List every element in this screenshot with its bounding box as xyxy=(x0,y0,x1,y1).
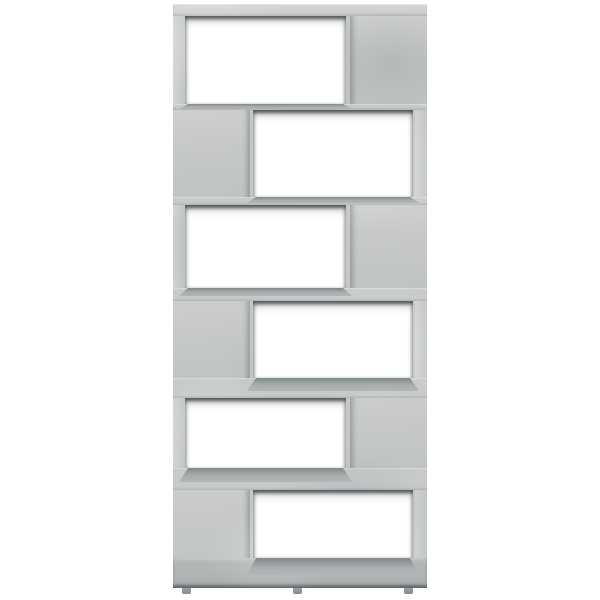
compartment-opening xyxy=(185,205,346,288)
right-side-edge xyxy=(415,301,427,378)
foot xyxy=(404,588,413,594)
product-photo xyxy=(0,0,600,600)
compartment-opening xyxy=(185,16,346,104)
back-panel xyxy=(350,197,427,301)
back-panel xyxy=(173,104,250,205)
compartment-opening xyxy=(185,398,346,468)
shelf-surface xyxy=(179,468,352,482)
left-side-edge xyxy=(173,16,185,104)
shelf-surface xyxy=(179,288,352,296)
left-side-edge xyxy=(173,205,185,288)
compartment-opening xyxy=(253,110,413,197)
shelf-surface xyxy=(179,104,352,109)
left-side-edge xyxy=(173,398,185,468)
cabinet-frame xyxy=(173,4,427,588)
compartment-opening xyxy=(253,301,413,378)
right-side-edge xyxy=(415,490,427,558)
foot xyxy=(182,588,191,594)
top-board xyxy=(173,4,427,16)
shelf-surface xyxy=(247,197,419,203)
foot xyxy=(293,588,302,594)
right-side-edge xyxy=(415,110,427,197)
compartment-opening xyxy=(253,490,413,558)
shelf-surface xyxy=(247,558,419,575)
back-panel xyxy=(350,4,427,110)
shelf-surface xyxy=(247,378,419,391)
